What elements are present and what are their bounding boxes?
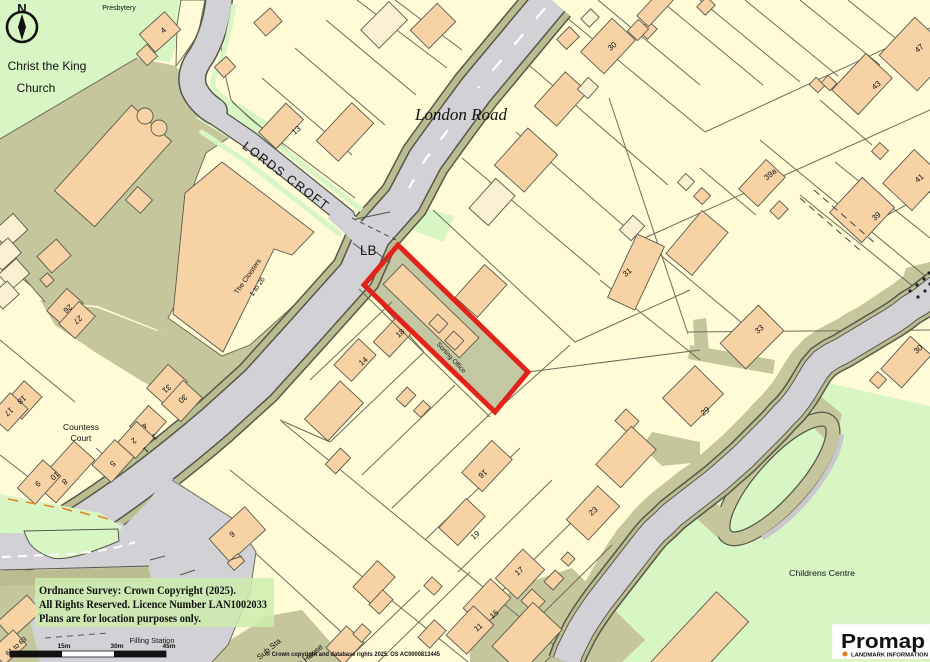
svg-text:London Road: London Road <box>414 105 508 124</box>
svg-text:LANDMARK INFORMATION: LANDMARK INFORMATION <box>851 653 928 659</box>
svg-text:15m: 15m <box>57 643 70 650</box>
svg-text:Plans are for location purpose: Plans are for location purposes only. <box>39 613 201 625</box>
svg-text:Childrens Centre: Childrens Centre <box>789 568 855 578</box>
svg-text:All Rights Reserved. Licence N: All Rights Reserved. Licence Number LAN1… <box>39 599 267 611</box>
svg-text:Church: Church <box>17 81 56 95</box>
svg-text:Court: Court <box>71 433 92 443</box>
svg-text:Promap: Promap <box>841 631 925 653</box>
svg-text:N: N <box>17 1 26 16</box>
svg-text:45m: 45m <box>162 643 175 650</box>
svg-text:Countess: Countess <box>63 422 99 432</box>
svg-text:Christ the King: Christ the King <box>8 59 87 73</box>
svg-text:30m: 30m <box>110 643 123 650</box>
svg-text:Ordnance Survey: Crown Copyrig: Ordnance Survey: Crown Copyright (2025). <box>39 585 236 597</box>
svg-text:© Crown copyright and database: © Crown copyright and database rights 20… <box>266 650 440 658</box>
svg-text:LB: LB <box>360 243 377 258</box>
svg-text:Presbytery: Presbytery <box>102 5 136 12</box>
